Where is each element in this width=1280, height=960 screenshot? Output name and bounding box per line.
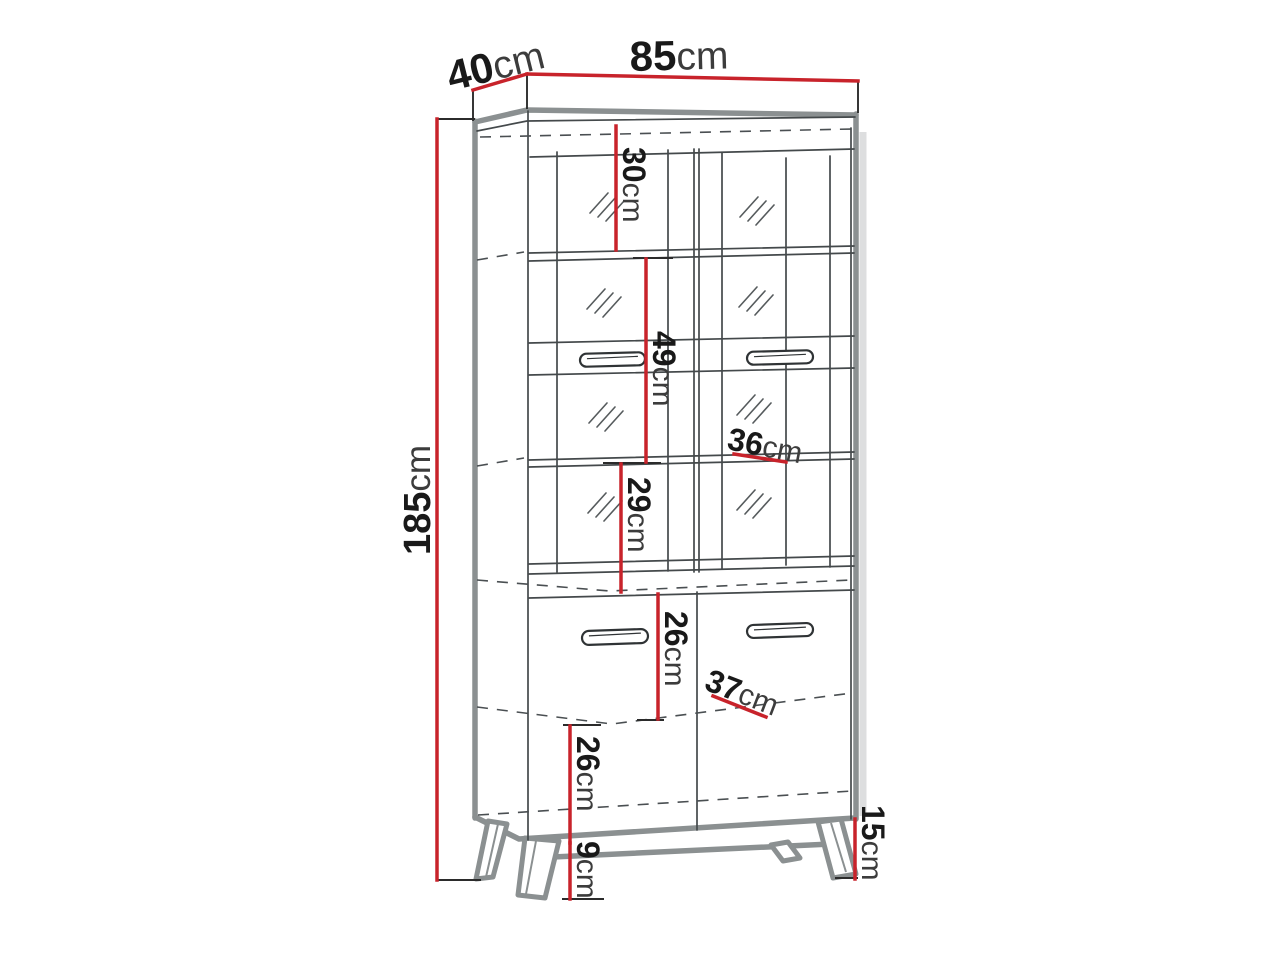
shelf2-bottom xyxy=(529,459,854,467)
furniture-dimension-diagram: 40cm 85cm 185cm 30cm 49cm 36cm 29cm 26cm… xyxy=(0,0,1280,960)
label-26cm-upper: 26cm xyxy=(658,611,694,687)
top-panel-underside xyxy=(477,117,855,131)
shelf1-front xyxy=(529,246,854,253)
glass-mark xyxy=(739,287,773,315)
label-49cm: 49cm xyxy=(646,331,682,407)
label-26cm-lower-number: 26 xyxy=(570,736,606,772)
label-29cm: 29cm xyxy=(621,477,657,553)
label-36cm: 36cm xyxy=(725,421,806,471)
cabinet-structure-lines xyxy=(477,111,855,840)
bottom-panel-dashed xyxy=(478,791,852,815)
label-9cm-unit: cm xyxy=(570,859,603,899)
glass-pane-top xyxy=(530,149,854,157)
label-29cm-number: 29 xyxy=(621,477,657,513)
front-right-leg xyxy=(818,819,856,878)
hidden-dashed-lines xyxy=(477,129,852,815)
upper-left-handle xyxy=(580,352,645,367)
label-9cm: 9cm xyxy=(570,841,606,899)
label-85cm: 85cm xyxy=(629,30,729,80)
shelf1-bottom xyxy=(529,253,854,261)
lower-doors-top xyxy=(529,590,854,598)
label-26cm-upper-unit: cm xyxy=(658,647,691,687)
label-30cm: 30cm xyxy=(616,147,652,223)
label-49cm-unit: cm xyxy=(646,367,679,407)
lower-right-handle xyxy=(747,623,813,638)
rail-top xyxy=(529,336,854,343)
label-49cm-number: 49 xyxy=(646,331,682,367)
display-cabinet-drawing: 40cm 85cm 185cm 30cm 49cm 36cm 29cm 26cm… xyxy=(0,0,1280,960)
shelf2-front xyxy=(529,452,854,460)
label-15cm-unit: cm xyxy=(855,841,888,881)
label-85cm-number: 85 xyxy=(629,32,677,80)
glass-mark xyxy=(740,197,774,225)
glass-mark xyxy=(737,395,771,423)
upper-right-handle xyxy=(747,350,813,365)
label-29cm-unit: cm xyxy=(621,513,654,553)
glass-mark xyxy=(589,403,623,431)
lower-left-handle xyxy=(582,629,648,645)
divider-dashed xyxy=(477,580,852,591)
cabinet-carcass-outline xyxy=(475,110,856,857)
interior-top-dashed xyxy=(480,129,852,137)
label-40cm: 40cm xyxy=(442,30,549,99)
label-40cm-unit: cm xyxy=(488,34,549,88)
label-26cm-upper-number: 26 xyxy=(658,611,694,647)
lower-shelf-dashed xyxy=(477,693,852,724)
label-30cm-number: 30 xyxy=(616,147,652,183)
bottom-front-edge xyxy=(475,817,855,839)
rail-bottom xyxy=(529,368,854,375)
label-30cm-unit: cm xyxy=(616,183,649,223)
label-15cm-number: 15 xyxy=(855,805,891,841)
label-36cm-unit: cm xyxy=(760,430,806,470)
label-185cm: 185cm xyxy=(397,445,439,555)
label-37cm: 37cm xyxy=(700,662,783,723)
glass-mark xyxy=(737,490,771,518)
label-185cm-unit: cm xyxy=(399,445,438,492)
label-15cm: 15cm xyxy=(855,805,891,881)
shelf1-side-dashed xyxy=(477,252,524,260)
glass-door-bottom xyxy=(529,566,854,574)
label-185cm-number: 185 xyxy=(397,492,439,555)
glass-pane-bottom xyxy=(529,556,854,564)
glass-mark xyxy=(588,493,622,521)
glass-mark xyxy=(587,289,621,317)
front-left-leg xyxy=(518,838,559,898)
label-9cm-number: 9 xyxy=(570,841,606,859)
label-26cm-lower-unit: cm xyxy=(570,772,603,812)
shelf2-side-dashed xyxy=(477,458,524,466)
label-26cm-lower: 26cm xyxy=(570,736,606,812)
label-85cm-unit: cm xyxy=(676,34,729,78)
